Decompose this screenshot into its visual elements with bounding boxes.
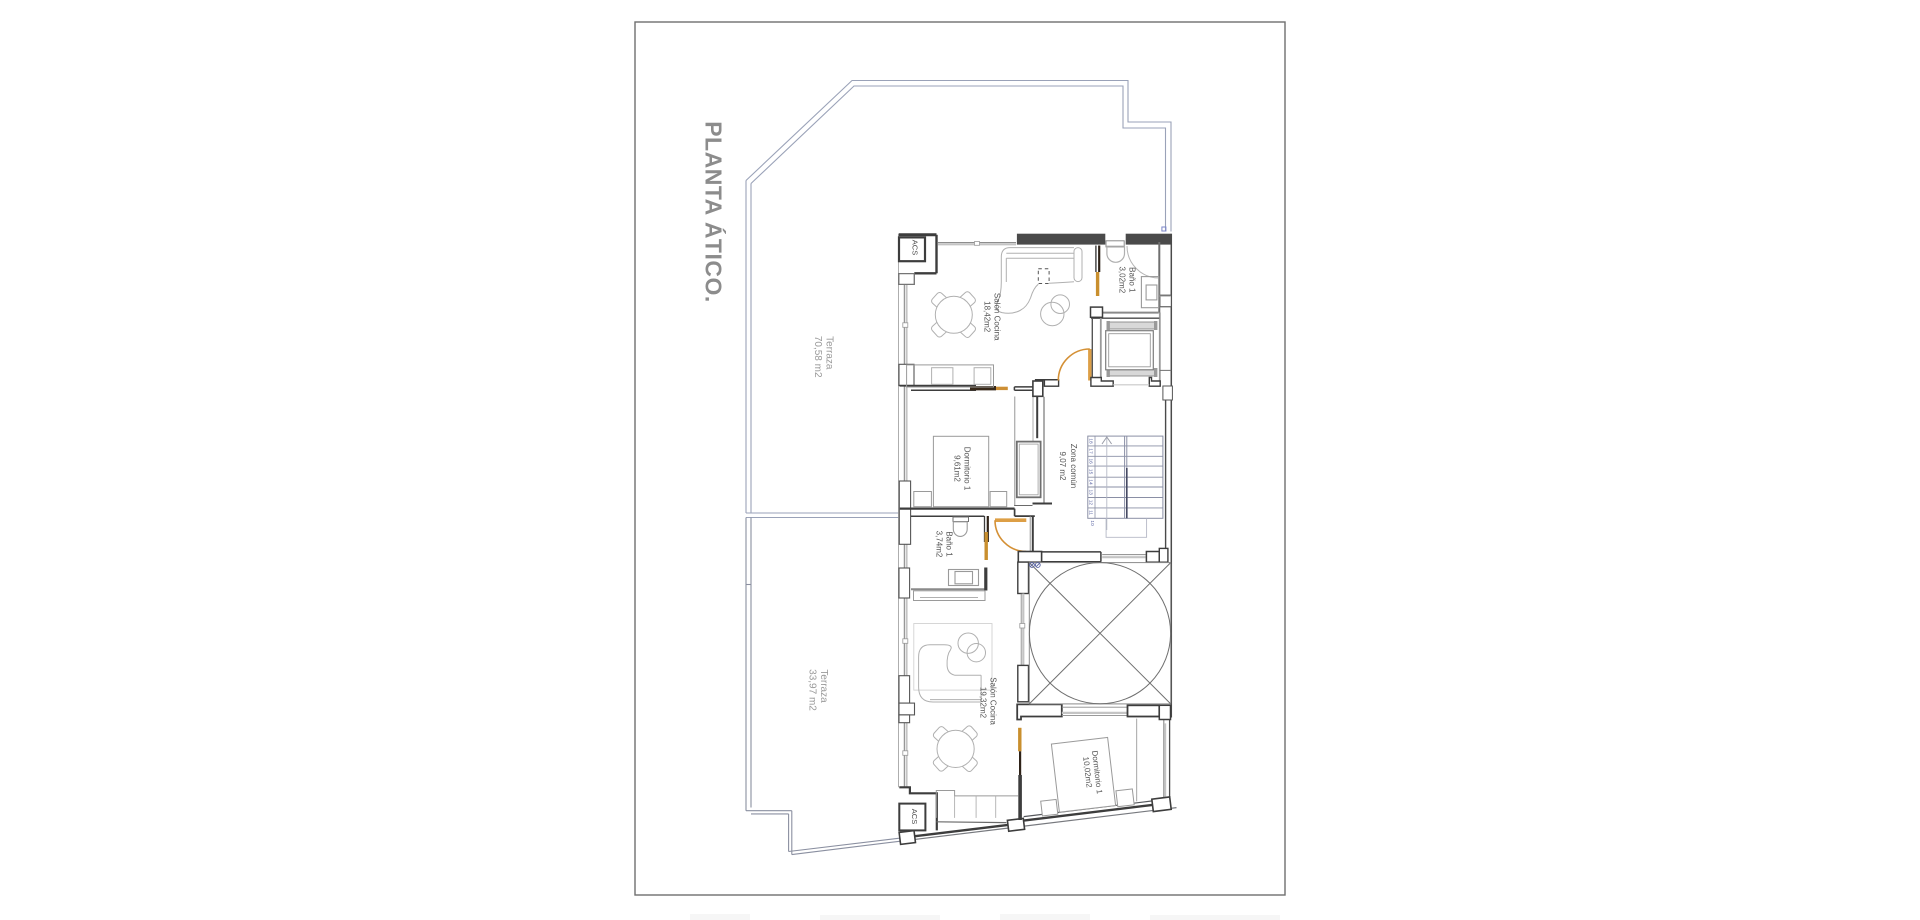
svg-text:ACS: ACS: [910, 809, 919, 824]
svg-text:16: 16: [1088, 459, 1094, 465]
svg-text:Salón Cocina: Salón Cocina: [989, 677, 998, 725]
svg-text:Zona común: Zona común: [1069, 444, 1078, 488]
svg-text:18,42m2: 18,42m2: [982, 301, 991, 333]
svg-text:19,32m2: 19,32m2: [979, 687, 988, 719]
svg-text:3,02m2: 3,02m2: [1118, 266, 1127, 293]
svg-text:9,61m2: 9,61m2: [953, 455, 962, 482]
svg-text:11: 11: [1088, 510, 1094, 515]
svg-text:PLANTA ÁTICO.: PLANTA ÁTICO.: [701, 121, 728, 303]
svg-text:17: 17: [1088, 448, 1094, 454]
svg-text:Salón Cocina: Salón Cocina: [992, 293, 1001, 341]
svg-text:Baño 1: Baño 1: [1128, 267, 1137, 293]
svg-text:9,07 m2: 9,07 m2: [1058, 452, 1067, 481]
svg-text:Terraza: Terraza: [818, 669, 829, 703]
svg-text:Baño 1: Baño 1: [945, 531, 954, 557]
svg-text:10: 10: [1089, 520, 1095, 526]
svg-text:33,97 m2: 33,97 m2: [807, 669, 818, 711]
svg-text:14: 14: [1088, 479, 1094, 485]
svg-text:15: 15: [1088, 469, 1094, 475]
svg-text:18: 18: [1088, 438, 1094, 444]
svg-text:13: 13: [1088, 490, 1094, 496]
svg-text:12: 12: [1088, 500, 1094, 506]
svg-text:Dormitorio 1: Dormitorio 1: [963, 447, 972, 491]
svg-text:Terraza: Terraza: [824, 336, 835, 370]
svg-text:70,58 m2: 70,58 m2: [812, 336, 823, 378]
svg-text:3,74m2: 3,74m2: [935, 531, 944, 558]
svg-text:ACS: ACS: [910, 240, 919, 255]
